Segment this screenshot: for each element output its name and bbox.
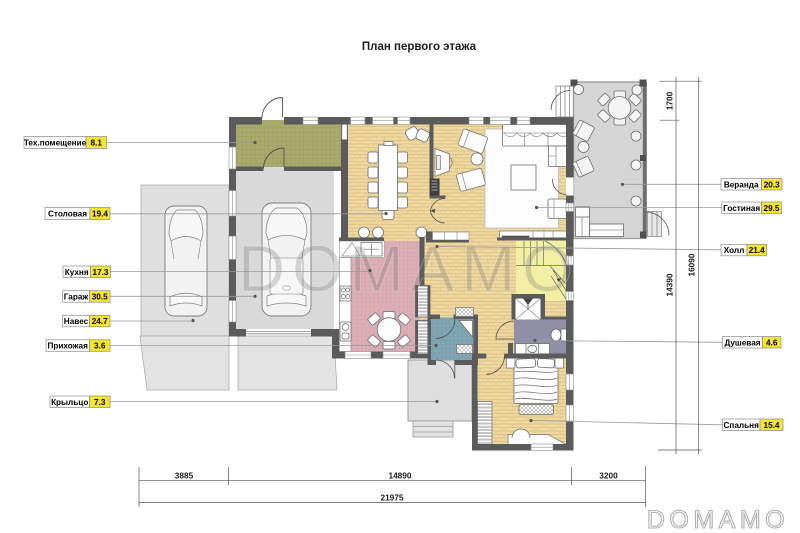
svg-text:Крыльцо: Крыльцо [51, 398, 88, 407]
svg-text:4.6: 4.6 [766, 338, 778, 347]
svg-text:Гостиная: Гостиная [723, 204, 760, 213]
svg-text:Навес: Навес [64, 317, 89, 326]
svg-text:3885: 3885 [175, 471, 194, 481]
svg-text:3200: 3200 [599, 471, 618, 481]
svg-text:Душевая: Душевая [724, 338, 760, 347]
svg-text:14390: 14390 [665, 273, 675, 296]
svg-text:8.1: 8.1 [91, 139, 103, 148]
svg-text:17.3: 17.3 [93, 268, 109, 277]
svg-text:1700: 1700 [665, 91, 675, 110]
svg-text:21975: 21975 [380, 492, 403, 502]
svg-text:3.6: 3.6 [94, 342, 106, 351]
svg-text:21.4: 21.4 [749, 246, 765, 255]
svg-text:Гараж: Гараж [64, 293, 89, 302]
svg-text:7.3: 7.3 [94, 398, 106, 407]
svg-text:14890: 14890 [388, 471, 411, 481]
svg-text:29.5: 29.5 [764, 204, 780, 213]
svg-text:Столовая: Столовая [48, 210, 87, 219]
svg-text:DOMAMO: DOMAMO [238, 232, 580, 305]
svg-text:19.4: 19.4 [92, 210, 108, 219]
svg-text:20.3: 20.3 [764, 180, 780, 189]
svg-text:Веранда: Веранда [724, 180, 759, 189]
svg-text:Спальня: Спальня [724, 421, 760, 430]
svg-text:План первого этажа: План первого этажа [362, 41, 477, 53]
svg-text:Кухня: Кухня [65, 268, 89, 277]
svg-text:DOMAMO: DOMAMO [647, 506, 789, 533]
svg-text:Тех.помещение: Тех.помещение [24, 139, 87, 148]
svg-text:16090: 16090 [687, 253, 697, 276]
svg-text:Холл: Холл [724, 246, 745, 255]
svg-text:Прихожая: Прихожая [47, 342, 88, 351]
svg-text:15.4: 15.4 [764, 421, 780, 430]
svg-text:30.5: 30.5 [92, 293, 108, 302]
svg-text:24.7: 24.7 [92, 317, 108, 326]
